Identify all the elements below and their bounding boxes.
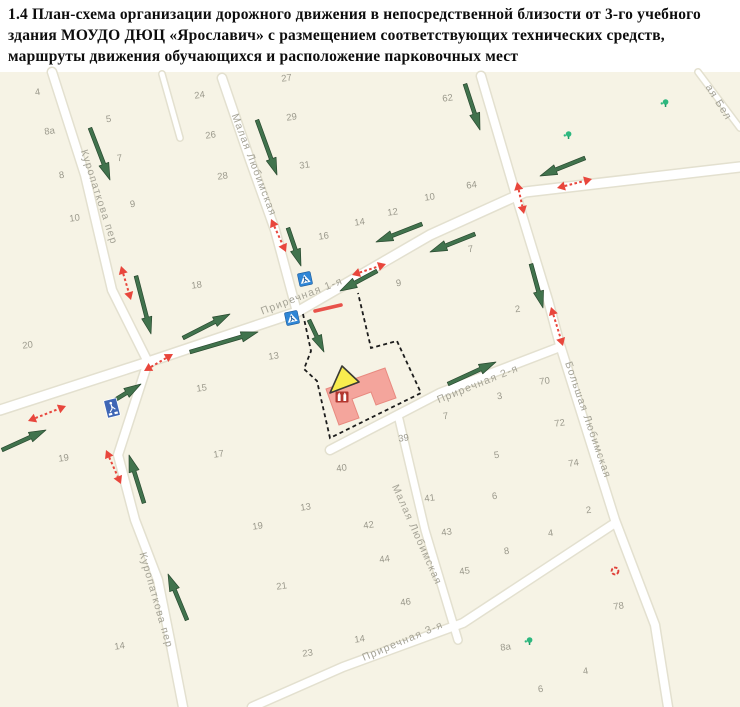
house-number: 20: [22, 339, 34, 351]
house-number: 72: [554, 417, 566, 429]
house-number: 17: [213, 448, 225, 460]
house-number: 46: [400, 596, 412, 608]
house-number: 14: [114, 640, 126, 652]
house-number: 78: [613, 600, 625, 612]
house-number: 62: [442, 92, 454, 104]
document-page: { "title": "1.4 План-схема организации д…: [0, 0, 740, 707]
tree-crown-small: [661, 102, 663, 104]
house-number: 15: [196, 382, 208, 394]
house-number: 42: [363, 519, 375, 531]
house-number: 39: [398, 432, 410, 444]
house-number: 10: [424, 191, 436, 203]
school-building-icon: [336, 392, 349, 403]
house-number: 74: [568, 457, 580, 469]
house-number: 12: [387, 206, 399, 218]
house-number: 18: [191, 279, 203, 291]
house-number: 64: [466, 179, 478, 191]
house-number: 29: [286, 111, 298, 123]
house-number: 45: [459, 565, 471, 577]
house-number: 19: [252, 520, 264, 532]
school-building-icon-tower: [343, 395, 346, 401]
house-number: 31: [299, 159, 311, 171]
pedestrian-crossing-sign: [297, 271, 312, 286]
school-building-icon-bg: [336, 392, 349, 403]
house-number: 19: [58, 452, 70, 464]
tree-crown: [663, 99, 669, 105]
tree-trunk: [568, 136, 570, 139]
house-number: 44: [379, 553, 391, 565]
school-building-icon-tower: [338, 395, 341, 401]
house-number: 24: [194, 89, 206, 101]
house-number: 41: [424, 492, 436, 504]
tree-crown-small: [564, 134, 566, 136]
house-number: 70: [539, 375, 551, 387]
house-number: 14: [354, 216, 366, 228]
tree-crown-small: [525, 640, 527, 642]
house-number: 40: [336, 462, 348, 474]
tree-trunk: [665, 104, 667, 107]
page-title: 1.4 План-схема организации дорожного дви…: [8, 5, 728, 67]
house-number: 10: [69, 212, 81, 224]
house-number: 28: [217, 170, 229, 182]
house-number: 23: [302, 647, 314, 659]
house-number: 16: [318, 230, 330, 242]
house-number: 14: [354, 633, 366, 645]
map-canvas: 42427628а5262987283110916141210641897220…: [0, 0, 740, 707]
house-number: 27: [281, 72, 293, 84]
tree-crown: [566, 131, 572, 137]
house-number: 13: [300, 501, 312, 513]
pedestrian-crossing-sign: [284, 310, 299, 325]
house-number: 21: [276, 580, 288, 592]
tree-crown: [527, 637, 533, 643]
tree-trunk: [529, 642, 531, 645]
house-number: 13: [268, 350, 280, 362]
house-number: 26: [205, 129, 217, 141]
house-number: 43: [441, 526, 453, 538]
